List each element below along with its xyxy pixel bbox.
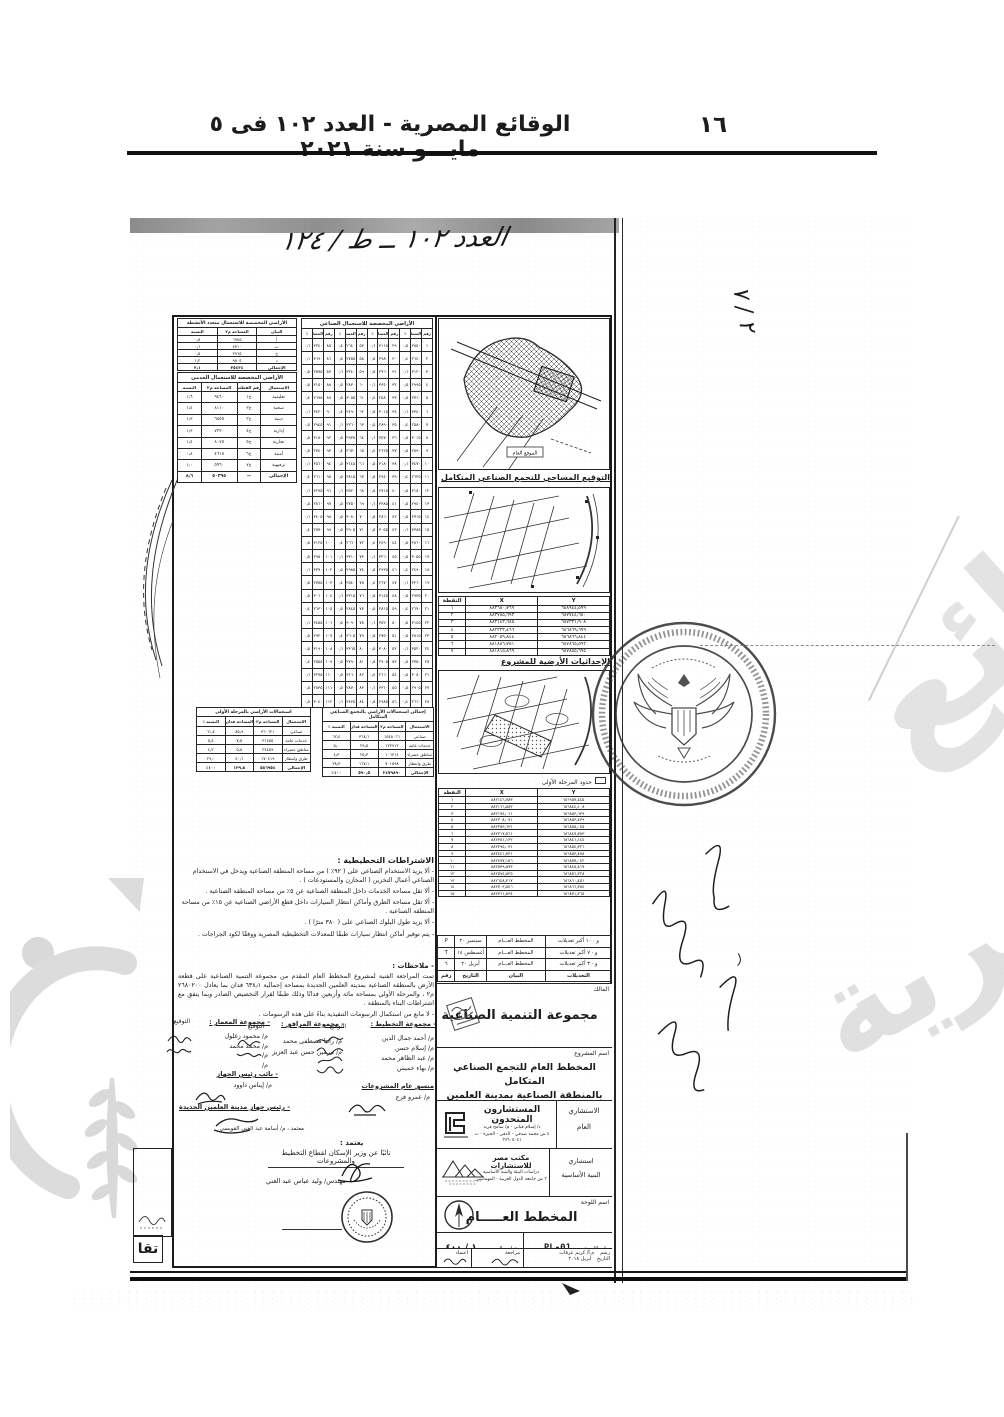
table-cell: ٢٥٨٠ bbox=[411, 418, 422, 431]
table-cell: ٣٤٠٥ bbox=[313, 510, 324, 523]
table-row: الاستعمالالمساحة م٢المساحة فدانالنسبة ٪ bbox=[323, 722, 434, 732]
table-row: ١٥٣٣٨٥٠٫٦٤٣٣٠٥٥٠٫٥٧١٢٩٠٥٠٫٥٩٩٢٥٧٠٠٫٤ bbox=[302, 523, 433, 536]
table-cell: ٣٥٢٠ bbox=[345, 484, 356, 497]
table-cell: ٢٦٩٥ bbox=[313, 391, 324, 404]
table-cell: ٠٫٥ bbox=[302, 418, 313, 431]
table-cell: ٨٨٢٠٥٩٫٨٤٤ bbox=[466, 634, 538, 641]
table-cell: ٣٣٨٥ bbox=[411, 523, 422, 536]
table-cell: P bbox=[438, 936, 455, 948]
table-cell: ٢٩٤٠ bbox=[378, 470, 389, 483]
industrial-table-title: الأراضي المخصصة للاستعمال الصناعي bbox=[301, 318, 433, 328]
table-cell: ٠٫٥ bbox=[334, 681, 345, 694]
revisions-table-container: و · ١٠ أكبر تعديلاتالمخطط العـــامسبتمبر… bbox=[437, 935, 612, 982]
table-cell: ٦٨٦٨٥٤٫٣٢٦ bbox=[538, 843, 610, 850]
table-cell: ٠٫٥ bbox=[367, 510, 378, 523]
table-cell: ٠٫٦ bbox=[302, 484, 313, 497]
table-cell: ٧٥ bbox=[356, 576, 367, 589]
table-row: الإجمالي٢٥٤٢٤٣٫١ bbox=[178, 364, 297, 371]
general-consultant-label: الاستشاري العام bbox=[560, 1107, 608, 1131]
table-cell: ١٩ bbox=[422, 576, 433, 589]
table-cell: ٠٫٥ bbox=[334, 668, 345, 681]
table-cell: ٠٫٥ bbox=[302, 695, 313, 708]
table-cell: دينية bbox=[261, 414, 297, 425]
signatory-name: م/ محمد محمد bbox=[198, 1042, 268, 1052]
table-cell: ٢٧٥٠ bbox=[345, 497, 356, 510]
table-row: ١٤٢٧١٥٠٫٥٤٢٢٨٦٠٠٫٥٧٠٣٠٨٠٠٫٥٩٨٣٤٠٥٠٫٦ bbox=[302, 510, 433, 523]
table-cell: ٠٫٥ bbox=[400, 655, 411, 668]
notes-label: - ملاحظات : bbox=[178, 962, 434, 970]
table-row: التعديلاتالبيانالتاريخرقم bbox=[438, 970, 612, 982]
table-cell: ٣١٤٥ bbox=[411, 615, 422, 628]
utilities-group-title: - مجموعة المرافق : bbox=[264, 1020, 344, 1028]
ground-coordinates-caption: الإحداثيات الأرضية للمشروع bbox=[438, 657, 610, 666]
table-cell: التاريخ bbox=[455, 970, 486, 982]
table-cell: ٠٫٥ bbox=[367, 642, 378, 655]
table-row: ٦٨٦٨٥٦٫٢٢٨٨٨٢٥٩٤٫٨٢٥١٢ bbox=[439, 870, 610, 877]
table-row: ٢٧٢٩٠٥٠٫٥٥٥٣٣١٠٠٫٦٨٣٢٨٧٠٠٫٥١١١٢٨٣٥٠٫٥ bbox=[302, 681, 433, 694]
table-cell: ٩٥ bbox=[323, 470, 334, 483]
table-cell: ٢٨١٥ bbox=[378, 602, 389, 615]
table-cell: ١٫٦ bbox=[178, 392, 202, 403]
table-cell: ٠٫٥ bbox=[302, 365, 313, 378]
table-cell: ٥ bbox=[422, 391, 433, 404]
table-cell: المخطط العـــام bbox=[486, 936, 545, 948]
signatory-name: م/ رانيا مصطفى محمد bbox=[262, 1036, 342, 1047]
table-row: إداريةخ٤٧٣٢٠١٫٢ bbox=[178, 426, 297, 437]
accreditation-name: مهندس/ وليد عباس عبد الغني bbox=[262, 1177, 350, 1185]
table-cell: ٠٫٦ bbox=[302, 352, 313, 365]
signature-scribble bbox=[166, 1046, 192, 1057]
table-cell: ٧ bbox=[439, 837, 466, 844]
table-cell: ٨٢ bbox=[356, 668, 367, 681]
table-row: ٦٨٦٨٥٧٫٠٤٢٨٨٢٤٧٧٫١٥٦١٠ bbox=[439, 857, 610, 864]
table-cell: ٢٦٤٠ bbox=[345, 339, 356, 352]
table-cell: ٧٤ bbox=[356, 563, 367, 576]
margin-scribble bbox=[137, 1208, 167, 1232]
phase1-summary-container: استعمالات الأراضي بالمرحلة الأولى الاستع… bbox=[196, 707, 311, 772]
table-cell: ١٠٥ bbox=[323, 602, 334, 615]
table-cell: ٣٧ bbox=[389, 444, 400, 457]
table-cell: ٣ bbox=[439, 619, 466, 626]
table-row: ٦٨٧٨٦٥٫٥٩٢٨٨١٨٨٦٫٧٥١٦ bbox=[439, 641, 610, 648]
table-cell: ٢٩٫٠ bbox=[197, 754, 226, 763]
sheet-number-row: رقم اللوحة PL-01 مقياس الرسم ١ / ٤٠٠ bbox=[437, 1232, 612, 1248]
table-cell: ٧ bbox=[439, 648, 466, 655]
table-row: ٦٨٦٨٥٤٫٣٢٦٨٨٢٣٩٥٫٠٣١٨ bbox=[439, 843, 610, 850]
table-cell: ٠٫٦ bbox=[302, 457, 313, 470]
table-cell: ٣٠٩٠ bbox=[345, 615, 356, 628]
table-cell: ٨٨٢١٧٤٫٠٦١ bbox=[466, 810, 538, 817]
scan-bottom-speckle bbox=[70, 1289, 920, 1306]
table-cell: ٣٣٨٥ bbox=[378, 497, 389, 510]
table-cell: ٥٦ bbox=[389, 695, 400, 708]
table-cell: ٨٨٢١٤٦٫٧٨٣ bbox=[466, 797, 538, 804]
infrastructure-consultant-panel: استشاري البنية الأساسية مكتب مصر للاستشا… bbox=[437, 1148, 612, 1196]
column-header: ٪ bbox=[334, 329, 345, 339]
revisions-table: و · ١٠ أكبر تعديلاتالمخطط العـــامسبتمبر… bbox=[437, 935, 612, 982]
corner-handwritten-mark: ٢ / ٧ bbox=[727, 285, 767, 378]
table-cell: ٢٩٤٠ bbox=[411, 497, 422, 510]
table-cell: ٠٫٦ bbox=[334, 484, 345, 497]
phase-one-map bbox=[438, 670, 610, 774]
table-cell: ٢٨ bbox=[422, 695, 433, 708]
table-cell: ٢٧٨٥ bbox=[313, 576, 324, 589]
column-header: الاستعمال bbox=[282, 717, 311, 727]
table-cell: ٢٦٧٠ bbox=[411, 602, 422, 615]
table-cell: ٠٫٥ bbox=[367, 589, 378, 602]
table-cell: ١٠٦٣١٤ bbox=[378, 750, 406, 759]
table-row: ١٠٣٤٧٠٠٫٦٣٨٣١٨٠٠٫٥٦٦٣١٤٥٠٫٥٩٤٣٥٦٠٠٫٦ bbox=[302, 457, 433, 470]
table-cell: ٣١ bbox=[389, 365, 400, 378]
table-cell: ٠٫٤ bbox=[367, 576, 378, 589]
table-cell: الإجمالي bbox=[261, 471, 297, 482]
table-cell: ٨١ bbox=[356, 655, 367, 668]
architecture-group-title: - مجموعة المعمار : bbox=[196, 1018, 270, 1026]
table-cell: ١٥٤٨٠٦٦ bbox=[378, 732, 406, 741]
table-cell: ٢٦٧٠ bbox=[378, 576, 389, 589]
table-cell: ٠٫٥ bbox=[367, 602, 378, 615]
table-cell: ٥٠٣٩٥ bbox=[201, 471, 237, 482]
table-cell: ٠٫٤ bbox=[400, 470, 411, 483]
table-cell: ٢٩٢٠ bbox=[313, 629, 324, 642]
table-cell: ٠٫٥ bbox=[400, 444, 411, 457]
table-cell: ٨٥٫٩ bbox=[225, 727, 254, 736]
table-row: ٦٨٦٨٦٩٫٦٩٩٨٨٢٣٣٣٫٤٦٦٤ bbox=[439, 627, 610, 634]
table-cell: ٠٫٥ bbox=[302, 444, 313, 457]
table-cell: ١٫٢ bbox=[178, 426, 202, 437]
table-cell: ٢٣ bbox=[422, 629, 433, 642]
table-cell: ٠٫٥ bbox=[400, 629, 411, 642]
table-cell: ٦١٫٤ bbox=[197, 727, 226, 736]
column-header: المساحة bbox=[313, 329, 324, 339]
table-cell: ٣٠٦٠ bbox=[313, 589, 324, 602]
table-row: ٩٢٨٩٠٠٫٥٣٧٢٦٢٥٠٫٤٦٥٢٦٧٠٠٫٤٩٣٢٧٤٠٠٫٥ bbox=[302, 444, 433, 457]
table-cell: ٠٫٥ bbox=[367, 695, 378, 708]
column-header: المساحة bbox=[345, 329, 356, 339]
table-cell: ٨٨٢٣٩٥٫٠٣١ bbox=[466, 843, 538, 850]
scan-right-edge bbox=[906, 1133, 908, 1281]
table-cell: ٣١٨٠ bbox=[411, 484, 422, 497]
table-row: YXالنقطة bbox=[439, 597, 610, 606]
table-cell: ٢٨٦٠ bbox=[378, 510, 389, 523]
table-cell: ٢٧١٥ bbox=[411, 510, 422, 523]
table-row: ٦٨٦٨٥٣٫٤٣٩٨٨٢٢٠٨٫٠٧١٤ bbox=[439, 817, 610, 824]
table-cell: ٦٣ bbox=[356, 418, 367, 431]
table-cell: ٩٨٠٤ bbox=[217, 357, 257, 364]
table-cell: ٣٤ bbox=[389, 404, 400, 417]
table-cell: ٨٨٣٦٨٠٫٧٦٩ bbox=[466, 605, 538, 612]
multi-use-table-title: الأراضي المخصصة للاستعمال متعدد الأنشطة bbox=[177, 318, 297, 327]
table-row: ٦٨٦٨٦٦٫٣٨٤٨٨٢٧٠٣٫٥٤٦١٤ bbox=[439, 883, 610, 890]
sheet-name-label: اسم اللوحة bbox=[581, 1199, 609, 1206]
table-cell: ١٠٨ bbox=[323, 642, 334, 655]
table-cell: ٨ bbox=[439, 843, 466, 850]
table-cell: ٠٫٦ bbox=[367, 339, 378, 352]
table-cell: خ٥ bbox=[237, 437, 261, 448]
table-cell: ٠٫٥ bbox=[367, 457, 378, 470]
table-row: ٢٣٢٨١٥٠٫٥٥١٢٧٥٠٠٫٥٧٩٢٦٠٥٠٫٤١٠٧٢٩٢٠٠٫٥ bbox=[302, 629, 433, 642]
requirements-title: الاشتراطات التخطيطية : bbox=[178, 856, 434, 865]
review-cell: مراجعة bbox=[474, 1250, 520, 1266]
table-cell: ٦١ bbox=[356, 391, 367, 404]
table-cell: ٢ bbox=[439, 803, 466, 810]
table-cell: ٠٫٦ bbox=[334, 642, 345, 655]
table-row: ٦٨٦٨٥٣٫٦٣٩٨٨٢١٧٤٫٠٦١٣ bbox=[439, 810, 610, 817]
signature-scribble bbox=[316, 1066, 344, 1075]
table-cell: ٢٤٩٠ bbox=[345, 404, 356, 417]
table-cell: ٩٧ bbox=[323, 497, 334, 510]
table-cell: ٣٢ bbox=[389, 378, 400, 391]
table-cell: ٠٫٥ bbox=[400, 339, 411, 352]
table-cell: ٠٫٤ bbox=[367, 444, 378, 457]
street-grid-map bbox=[438, 487, 610, 593]
services-land-table: الاستعمالرقم القطعةالمساحة م٢النسبةتعليم… bbox=[177, 382, 297, 483]
table-row: ١٢٨٥٠٠٫٥٢٩٣١١٥٠٫٦٥٧٢٦٤٠٠٫٤٨٥٣٢٤٠٠٫٦ bbox=[302, 339, 433, 352]
table-cell: ٠٫٦ bbox=[302, 615, 313, 628]
column-header: رقم القطعة bbox=[237, 383, 261, 392]
table-cell: ٩١ bbox=[323, 418, 334, 431]
table-cell: — bbox=[237, 471, 261, 482]
table-cell: ١١١ bbox=[323, 681, 334, 694]
table-cell: ٨٨٢٣٥١٫١٣٢ bbox=[466, 837, 538, 844]
table-cell: ٠٫٤ bbox=[302, 602, 313, 615]
table-cell: ٣١٨٠ bbox=[378, 457, 389, 470]
table-cell: ٠٫٤ bbox=[334, 629, 345, 642]
label-line: الاستشاري bbox=[560, 1107, 608, 1115]
services-table-title: الأراضي المخصصة للاستعمال الخدمي bbox=[177, 372, 297, 382]
signature-scribble bbox=[166, 1033, 192, 1044]
table-cell: ٢٨٫٣ bbox=[323, 759, 351, 768]
table-cell: طرق وانتظار bbox=[406, 759, 434, 768]
table-cell: ١٫٢ bbox=[178, 357, 218, 364]
consultant-detail: دراسات البيئة والبنية الأساسية bbox=[475, 1170, 547, 1177]
table-cell: ٠٫٤ bbox=[302, 655, 313, 668]
table-cell: ٢٨٩٠ bbox=[411, 444, 422, 457]
table-cell: ٠٫٥ bbox=[302, 576, 313, 589]
table-cell: ٠٫٥ bbox=[400, 378, 411, 391]
general-location-map: الموقع العام bbox=[438, 318, 610, 470]
table-cell: ٣٠ bbox=[389, 352, 400, 365]
table-cell: ٠٫٥ bbox=[367, 470, 378, 483]
table-cell: ٠٫٦ bbox=[400, 365, 411, 378]
table-row: ٦٨٦٨٧١٫٢٦٥٨٨٢٧٦١٫٨٣٤١٥ bbox=[439, 890, 610, 897]
table-cell: ٢٧٩٠ bbox=[345, 655, 356, 668]
table-cell: ٠٫٥ bbox=[400, 484, 411, 497]
table-row: طرق وانتظار١٧٠٤١٩٤٠٫٦٢٩٫٠ bbox=[197, 754, 311, 763]
signatory-name: م/ أحمد جمال الدين bbox=[350, 1034, 434, 1044]
table-cell: ٢٧٤٠ bbox=[313, 444, 324, 457]
table-cell: ٨٨٢٤٧٧٫١٥٦ bbox=[466, 857, 538, 864]
table-row: ٦٨٦٨٦٦٫٨٤٤٨٨٢٠٥٩٫٨٤٤٥ bbox=[439, 634, 610, 641]
table-cell: صناعي bbox=[406, 732, 434, 741]
table-cell: ١٠٧ bbox=[323, 629, 334, 642]
table-cell: ٠٫٥ bbox=[334, 470, 345, 483]
table-row: و · ٧ أكبر تعديلاتالمخطط العـــامأغسطس ١… bbox=[438, 947, 612, 959]
table-cell: ٣٢٧٥ bbox=[313, 668, 324, 681]
table-cell: ٣٫١ bbox=[178, 364, 218, 371]
table-cell: ٢٥٥٥ bbox=[313, 655, 324, 668]
table-row: طرق وانتظار٧٠١٥٩٨١٦٧٫١٢٨٫٣ bbox=[323, 759, 434, 768]
column-header: المساحة م٢ bbox=[217, 328, 257, 336]
table-cell: ٤٢ bbox=[389, 510, 400, 523]
table-cell: ٦٢٫٤ bbox=[323, 732, 351, 741]
table-cell: ٥٩٦٠ bbox=[201, 460, 237, 471]
table-cell: ٢٩٩٥ bbox=[411, 378, 422, 391]
date-label: التاريخ bbox=[597, 1256, 610, 1262]
table-cell: ٤٥ bbox=[389, 550, 400, 563]
table-cell: ٣٣٧٠ bbox=[313, 563, 324, 576]
requirement-item: - يتم توفير أماكن انتظار سيارات طبقًا لل… bbox=[178, 931, 434, 940]
column-header: رقم bbox=[422, 329, 433, 339]
table-cell: ٠٫٦ bbox=[367, 497, 378, 510]
sheet-bottom-border bbox=[130, 1271, 908, 1273]
table-cell: ٦٥ bbox=[356, 444, 367, 457]
table-row: ١١٢٦٢٥٠٫٤٣٩٢٩٤٠٠٫٥٦٧٢٨١٥٠٫٥٩٥٢٦١٠٠٫٤ bbox=[302, 470, 433, 483]
utilities-group-names: م/ رانيا مصطفى محمدم/ نيرمين حسن عبد الع… bbox=[262, 1036, 342, 1058]
table-cell: ٢٦٦٠ bbox=[345, 536, 356, 549]
table-cell: ٠٫٥ bbox=[302, 431, 313, 444]
gazette-watermark-word-1: الوقائع bbox=[820, 320, 1004, 794]
table-cell: ٣٨ bbox=[389, 457, 400, 470]
table-cell: ٠٫٥ bbox=[367, 655, 378, 668]
table-cell: ٠٫٤ bbox=[367, 391, 378, 404]
table-row: الإجمالي٥٨٦٩٥٤١٣٩٫٨١٠٠٪ bbox=[197, 763, 311, 772]
table-cell: ٠٫٥ bbox=[334, 615, 345, 628]
column-header: المساحة فدان bbox=[225, 717, 254, 727]
table-cell: ٥٧ bbox=[356, 339, 367, 352]
table-cell: ٣٠٨٠ bbox=[378, 642, 389, 655]
table-cell: ٢٨٥٠ bbox=[411, 339, 422, 352]
table-cell: ٣٢٤٠ bbox=[313, 339, 324, 352]
table-cell: ٣٥٦٠ bbox=[313, 457, 324, 470]
gazette-watermark-word-2: المصرية bbox=[787, 715, 1004, 1089]
general-consultant-name: المستشارون المتحدون bbox=[470, 1105, 554, 1125]
table-row: و · ٣ أكبر تعديلاتالمخطط العـــامأبريل ٢… bbox=[438, 959, 612, 971]
table-row: ٤٢٩٩٥٠٫٥٣٢٣٣٤٠٠٫٦٦٠٢٨٣٠٠٫٥٨٨٣١٥٠٠٫٥ bbox=[302, 378, 433, 391]
table-row: ٢٦٣٠٨٠٠٫٥٥٤٢٦٦٠٠٫٤٨٢٣١٦٠٠٫٥١١٠٣٢٧٥٠٫٦ bbox=[302, 668, 433, 681]
table-cell: ٠٫٤ bbox=[400, 695, 411, 708]
table-cell: ٢٦٣٠ bbox=[313, 602, 324, 615]
column-header: النسبة bbox=[178, 383, 202, 392]
table-cell: ١٠١ bbox=[323, 550, 334, 563]
table-cell: ٠٫٤ bbox=[302, 470, 313, 483]
table-cell: ٠٫٤ bbox=[367, 668, 378, 681]
table-cell: إدارية bbox=[261, 426, 297, 437]
project-coordinates-table-2: YXالنقطة٦٨٦٩٥٧٫٤٤٥٨٨٢١٤٦٫٧٨٣١٦٨٦٨٤٤٫١٠٨٨… bbox=[438, 788, 610, 897]
table-cell: ٠٫٥ bbox=[302, 550, 313, 563]
table-cell: ١٠٠٪ bbox=[323, 768, 351, 777]
table-cell: ٠٫٤ bbox=[400, 418, 411, 431]
table-cell: ٠٫٥ bbox=[400, 681, 411, 694]
street-grid-drawing bbox=[439, 488, 609, 592]
table-cell: ٢٨٧٠ bbox=[345, 681, 356, 694]
table-cell: ٦ bbox=[439, 830, 466, 837]
table-row: ٦٨٨٩٤٤٫٥٩٩٨٨٣٦٨٠٫٧٦٩١ bbox=[439, 605, 610, 612]
table-cell: ٣٥٢٠ bbox=[378, 615, 389, 628]
table-cell: ١١ bbox=[439, 863, 466, 870]
table-cell: ٩٨ bbox=[323, 510, 334, 523]
table-cell: ٠٫٥ bbox=[367, 523, 378, 536]
table-row: الاستعمالالمساحة م٢المساحة فدانالنسبة ٪ bbox=[197, 717, 311, 727]
table-cell: ٠٫٥ bbox=[334, 391, 345, 404]
coordinator-signature-scribble bbox=[346, 1100, 388, 1117]
table-cell: ١٠٦ bbox=[323, 615, 334, 628]
table-cell: ٢٩٠٥ bbox=[411, 681, 422, 694]
panel-divider bbox=[556, 1101, 557, 1148]
table-cell: ٦٨٨٩٤٤٫٥٩٩ bbox=[538, 605, 610, 612]
column-header: رقم bbox=[356, 329, 367, 339]
table-row: ترفيهيةخ٧٥٩٦٠١٫٠ bbox=[178, 460, 297, 471]
table-cell: خ٤ bbox=[237, 426, 261, 437]
table-cell: ٣١١٥ bbox=[378, 339, 389, 352]
table-cell: ٣٥٢٠ bbox=[411, 642, 422, 655]
table-cell: ٨٨٢٥٩٤٫٨٢٥ bbox=[466, 870, 538, 877]
table-cell: ٦٧ bbox=[356, 470, 367, 483]
table-cell: ٠٫٤ bbox=[334, 536, 345, 549]
table-cell: ٥٨٦٩٥٤ bbox=[254, 763, 283, 772]
table-cell: خ٧ bbox=[237, 460, 261, 471]
column-header: النقطة bbox=[439, 789, 466, 797]
table-cell: الإجمالي bbox=[406, 768, 434, 777]
table-cell: ٦٨٦٨٤٧٫٧٨٣ bbox=[538, 830, 610, 837]
total-land-use-table: الاستعمالالمساحة م٢المساحة فدانالنسبة ٪ص… bbox=[322, 721, 434, 777]
table-cell: ٠٫٤ bbox=[367, 536, 378, 549]
table-cell: ٣٠٤٠ bbox=[313, 695, 324, 708]
project-name-line1: المخطط العام للتجمع الصناعي المتكامل bbox=[437, 1061, 612, 1089]
coordinates-table-1-container: YXالنقطة٦٨٨٩٤٤٫٥٩٩٨٨٣٦٨٠٫٧٦٩١٦٨٧٧٤٤٫٦٨٠٨… bbox=[438, 596, 610, 656]
table-cell: ١٢ bbox=[422, 484, 433, 497]
table-cell: ٢٦٦٠ bbox=[411, 695, 422, 708]
table-cell: ٨ bbox=[422, 431, 433, 444]
infrastructure-consultant-label: استشاري البنية الأساسية bbox=[553, 1157, 609, 1179]
industrial-land-table-container: الأراضي المخصصة للاستعمال الصناعي رقمالم… bbox=[301, 318, 433, 708]
table-cell: ٦٨٥٥ bbox=[201, 414, 237, 425]
requirement-item: - ألا تقل مساحة الخدمات داخل المنطقة الص… bbox=[178, 888, 434, 897]
table-row: ٢٨٢٦٦٠٠٫٤٥٦٢٩٨٥٠٫٥٨٤٣٤٣٥٠٫٦١١٢٣٠٤٠٠٫٥ bbox=[302, 695, 433, 708]
table-cell: ٢٨١٥ bbox=[411, 629, 422, 642]
table-cell: ٣٣٤٠ bbox=[378, 378, 389, 391]
signatory-name: م/ نيرمين حسن عبد العزيز bbox=[262, 1047, 342, 1058]
table-cell: ٦٩ bbox=[356, 497, 367, 510]
table-cell: ٢٨٣٥ bbox=[313, 681, 324, 694]
road-curve-lines bbox=[124, 478, 178, 750]
table-cell: ٧٠١٥٩٨ bbox=[378, 759, 406, 768]
table-cell: ٥٫٠ bbox=[323, 741, 351, 750]
table-cell: ٠٫٦ bbox=[367, 431, 378, 444]
table-cell: ٣ bbox=[422, 365, 433, 378]
table-cell: ٦٨٦٨٥٣٫٤٧٨ bbox=[538, 850, 610, 857]
table-row: الاستعمالرقم القطعةالمساحة م٢النسبة bbox=[178, 383, 297, 392]
table-cell: طرق وانتظار bbox=[282, 754, 311, 763]
phase1-land-use-table: الاستعمالالمساحة م٢المساحة فدانالنسبة ٪ص… bbox=[196, 716, 311, 772]
table-cell: ٩٣ bbox=[323, 444, 334, 457]
table-row: ٦٣٣٤٠٠٫٦٣٤٣٠١٥٠٫٥٦٢٢٤٩٠٠٫٤٩٠٣٤٢٠٠٫٦ bbox=[302, 404, 433, 417]
table-cell: ٢٨٤٥ bbox=[345, 602, 356, 615]
table-cell: ١٠٩ bbox=[323, 655, 334, 668]
table-cell: خ٣ bbox=[237, 414, 261, 425]
table-cell: ٢٩٣٥ bbox=[378, 563, 389, 576]
table-cell: ٣٥ bbox=[389, 418, 400, 431]
table-cell: ٢٤٧٩٨٩٠ bbox=[378, 768, 406, 777]
table-cell: ٣٣ bbox=[389, 391, 400, 404]
table-cell: المخطط العـــام bbox=[486, 959, 545, 971]
table-cell: ٤٫٣ bbox=[323, 750, 351, 759]
table-cell: ٦٨٦٨٥٦٫٢٢٨ bbox=[538, 870, 610, 877]
table-cell: ٤ bbox=[422, 378, 433, 391]
table-cell: ٧٫٥ bbox=[225, 736, 254, 745]
table-cell: ٣٤٧٠ bbox=[378, 431, 389, 444]
official-eagle-stamp bbox=[588, 618, 780, 810]
